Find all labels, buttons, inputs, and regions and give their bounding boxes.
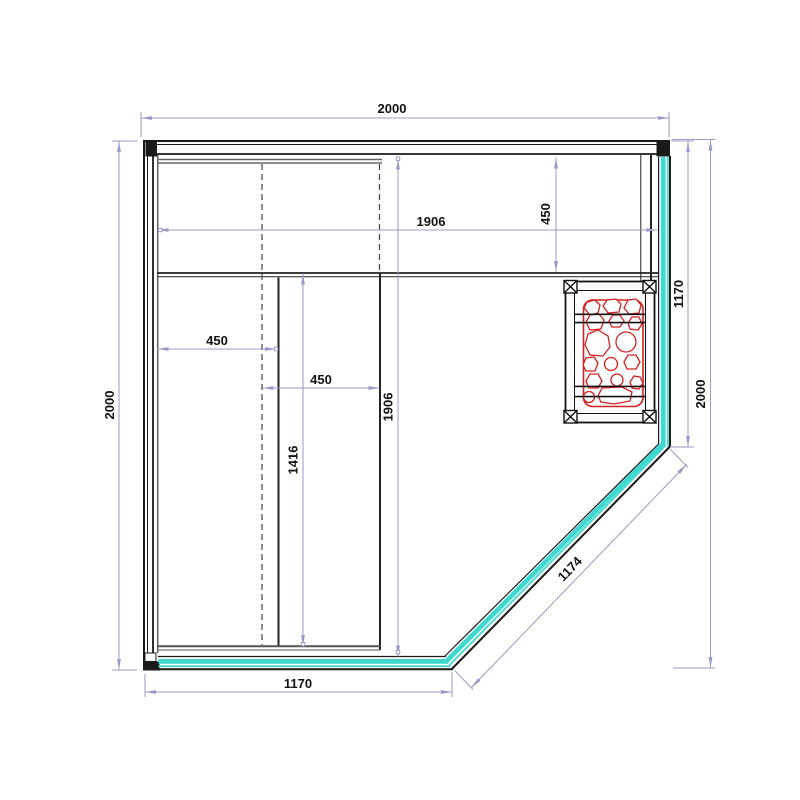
dim-interior-depth-label: 1906 <box>381 393 396 422</box>
bench-right-end-trim <box>641 155 651 281</box>
glass-wall-diagonal <box>445 444 670 669</box>
dimension-right-height: 2000 <box>672 140 715 669</box>
glass-pane <box>667 157 669 447</box>
dimension-top-width: 2000 <box>141 101 669 137</box>
bench-backrest-rail <box>157 160 382 164</box>
dimension-glass-diagonal: 1174 <box>455 449 688 690</box>
heater <box>564 281 656 424</box>
dim-glass-right-label: 1170 <box>671 280 686 308</box>
dimension-lower-bench-width: 450 <box>263 372 380 388</box>
dim-lower-bench-width-label: 450 <box>310 372 332 387</box>
dimension-left-height: 2000 <box>102 141 137 670</box>
glass-pane <box>159 665 451 667</box>
glass-wall-bottom <box>158 657 453 670</box>
bench-left-bottom-edge <box>157 646 381 650</box>
glass-pane <box>159 659 449 664</box>
dim-glass-diagonal-label: 1174 <box>555 553 586 584</box>
dim-seat-depth-left-label: 450 <box>206 333 228 348</box>
dimension-seat-depth-left: 450 <box>158 333 278 351</box>
bench-upper-front-edge <box>157 273 659 277</box>
dim-seat-depth-right-label: 450 <box>538 203 553 225</box>
timber-wall-top <box>143 141 670 154</box>
bench-hidden-edges <box>262 164 380 645</box>
dimension-glass-bottom: 1170 <box>145 672 452 697</box>
glass-wall-right <box>659 156 670 448</box>
dim-left-height-label: 2000 <box>102 391 117 420</box>
dimension-interior-depth: 1906 <box>381 157 400 657</box>
dim-interior-width-label: 1906 <box>417 214 446 229</box>
corner-post-bottom-left <box>143 653 160 671</box>
dim-bench-length-label: 1416 <box>286 446 301 475</box>
glass-pane <box>661 157 666 446</box>
corner-post-top-right <box>657 140 671 157</box>
dim-top-width-label: 2000 <box>378 101 407 116</box>
floor-plan-canvas: 2000 2000 1906 450 1170 2000 <box>0 0 800 800</box>
dimension-seat-depth-right: 450 <box>538 158 556 273</box>
dimension-interior-width: 1906 <box>158 214 658 232</box>
floor-plan-page: 2000 2000 1906 450 1170 2000 <box>0 0 800 800</box>
dim-right-height-label: 2000 <box>693 380 708 409</box>
dimension-bench-length: 1416 <box>286 274 305 647</box>
timber-wall-left <box>144 140 158 671</box>
dim-glass-bottom-label: 1170 <box>284 676 312 691</box>
corner-post-top-left <box>146 141 158 157</box>
dimension-glass-right: 1170 <box>670 141 694 447</box>
